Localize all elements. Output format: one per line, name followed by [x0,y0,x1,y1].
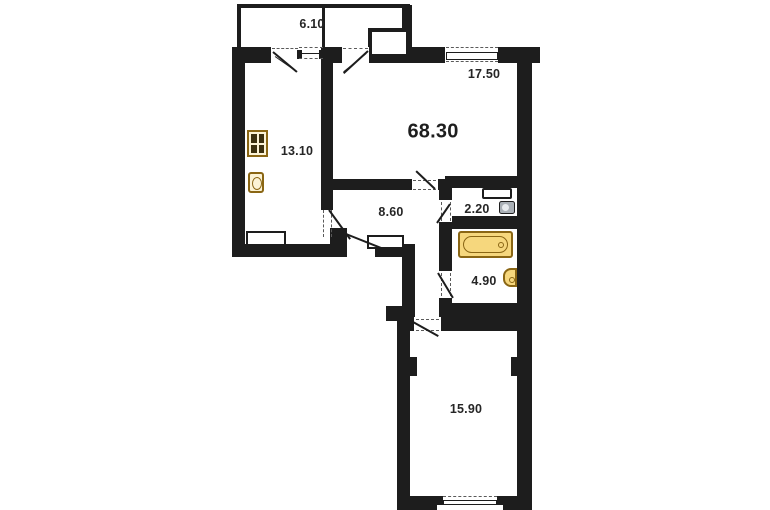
balcony-wall-left [237,4,241,50]
bedroom-window-dash [443,496,497,497]
wall-wc-bath-divider [452,216,532,229]
room-label-balcony: 6.10 [299,17,324,31]
bathroom-sink-drain [509,277,515,283]
wall-right-exterior [517,47,532,510]
balcony-doorR-dash [343,48,368,49]
living-window-dash-bottom [446,61,498,62]
pilaster-right [511,357,517,376]
bedroom-window-sill [436,504,504,510]
floor-plan: 6.10 17.50 68.30 13.10 8.60 2.20 4.90 15… [0,0,770,510]
stove-burner [251,145,257,154]
kitchen-sink-bowl [252,177,262,190]
kitchen-counter [246,231,286,246]
room-label-bathroom: 4.90 [471,274,496,288]
living-window [446,52,498,60]
toilet-seat [502,204,509,211]
stove-burner [259,145,265,154]
room-label-hallway: 8.60 [378,205,403,219]
cistern-icon [482,188,512,199]
bathtub-drain [498,242,504,248]
room-label-kitchen: 13.10 [281,144,313,158]
toilet-icon [499,201,515,214]
balcony-window-dash-bottom [299,58,323,59]
kitchen-sink-icon [248,172,264,193]
living-window-dash-top [446,47,498,48]
pilaster-left [410,357,417,376]
wall-kitchen-living-divider [321,62,333,210]
room-label-wc: 2.20 [464,202,489,216]
bathtub-icon [458,231,513,258]
opening-balcony-window [299,47,321,63]
stove-burner [251,134,257,143]
total-area-label: 68.30 [407,121,458,144]
balcony-window-dash-top [299,47,323,48]
wall-bedroom-left [397,317,410,510]
wall-bathroom-bottom [452,303,532,317]
balcony-window-line [302,53,320,54]
bathroom-sink-icon [503,268,517,287]
entry-threshold [367,235,404,249]
stove-icon [247,130,268,157]
stove-burner [259,134,265,143]
room-label-living: 17.50 [468,67,500,81]
balcony-doorL-dash [272,48,298,49]
balcony-recess [368,28,406,54]
wall-left-exterior [232,47,245,257]
room-label-bedroom: 15.90 [450,402,482,416]
